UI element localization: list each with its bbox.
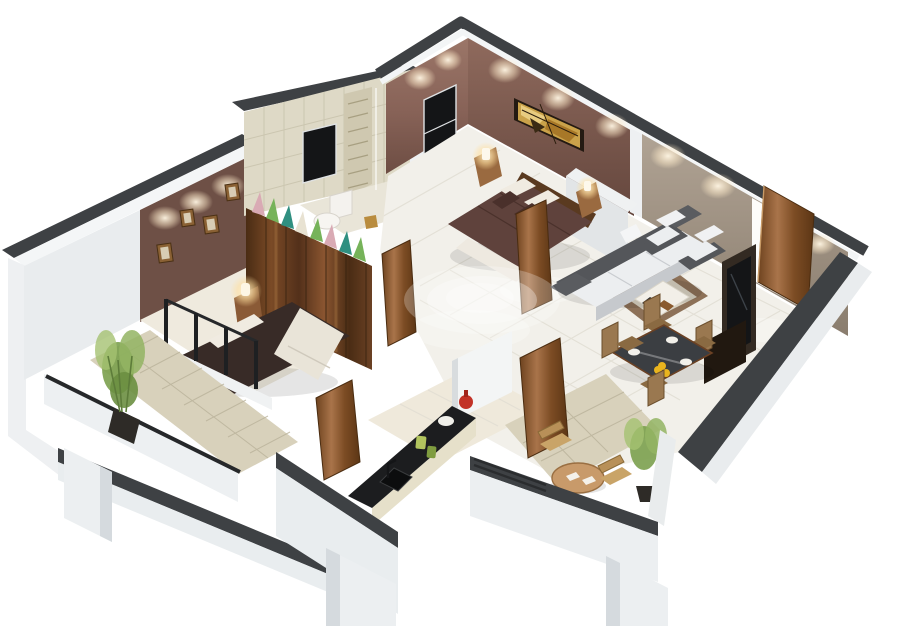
watermark-smudge <box>404 266 560 334</box>
dinner-plate <box>680 359 692 366</box>
foot-left-shade <box>100 466 112 542</box>
bedroom2-door-leaf <box>316 380 360 480</box>
lamp-left <box>482 148 490 160</box>
spotlight-glow <box>434 49 462 71</box>
window-post <box>224 327 228 375</box>
bedside-lamp <box>241 283 250 296</box>
spotlight-glow <box>700 173 736 199</box>
shower-gold-handle <box>364 215 378 229</box>
red-vase <box>459 395 473 409</box>
dinner-plate <box>666 337 678 344</box>
entrance-door-leaf <box>758 186 814 310</box>
red-vase-neck <box>464 390 468 397</box>
window-post <box>194 313 198 361</box>
spotlight-glow <box>404 66 436 90</box>
lamp-right <box>584 181 591 191</box>
spotlight-glow <box>541 85 575 111</box>
bathroom-wall-screen <box>303 124 336 183</box>
floorplan-3d-scene <box>0 0 900 626</box>
green-canister <box>415 436 426 450</box>
triangle-cushion <box>339 231 352 255</box>
spotlight-glow <box>650 143 686 169</box>
spotlight-glow <box>488 57 522 83</box>
green-canister <box>426 446 436 459</box>
white-bowl <box>438 416 454 426</box>
window-post <box>254 341 258 389</box>
fruit <box>658 362 666 370</box>
foot-center-shade <box>326 548 340 626</box>
floorplan-render-canvas <box>0 0 900 626</box>
foot-right-shade <box>606 556 620 626</box>
window-post <box>164 299 168 347</box>
triangle-cushion <box>281 205 294 229</box>
spotlight-glow <box>595 113 629 139</box>
spotlight-glow <box>148 206 182 230</box>
